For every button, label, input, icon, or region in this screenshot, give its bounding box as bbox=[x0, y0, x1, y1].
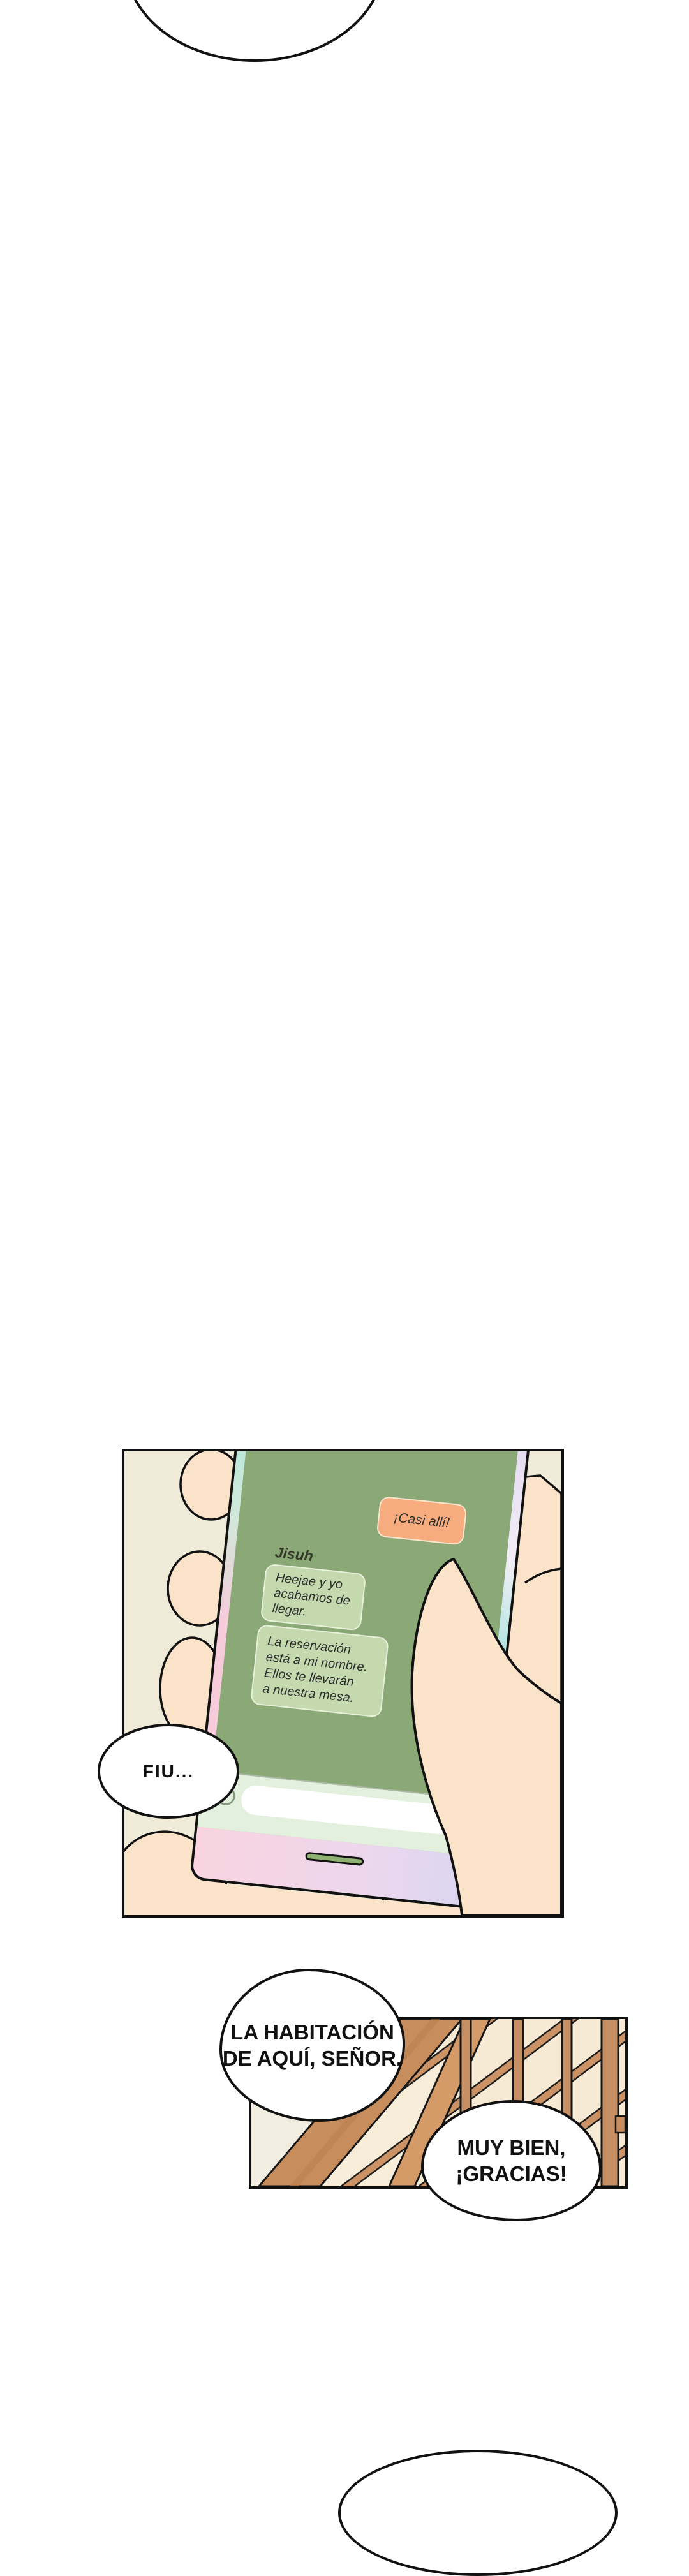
stairs-post-4 bbox=[602, 2019, 618, 2186]
speech-bubble-bottom-partial bbox=[338, 2450, 618, 2576]
webtoon-page: { "page": { "type": "webtoon-episode-seg… bbox=[0, 0, 689, 2473]
stairs-right-block bbox=[616, 2116, 625, 2133]
thumb-shape bbox=[412, 1559, 561, 1915]
speech-bubble-bellboy: LA HABITACIÓN DE AQUÍ, SEÑOR. bbox=[219, 1969, 405, 2122]
speech-text-bellboy: LA HABITACIÓN DE AQUÍ, SEÑOR. bbox=[223, 2019, 402, 2072]
sfx-bubble-fiu: FIU... bbox=[98, 1724, 239, 1819]
phone-panel: ¡Casi allí! Jisuh Heejae y yo acabamos d… bbox=[122, 1449, 564, 1918]
sfx-text: FIU... bbox=[143, 1761, 194, 1782]
hand-front-art bbox=[124, 1451, 561, 1915]
speech-text-guest: MUY BIEN, ¡GRACIAS! bbox=[456, 2135, 567, 2187]
speech-bubble-top-partial bbox=[124, 0, 385, 62]
